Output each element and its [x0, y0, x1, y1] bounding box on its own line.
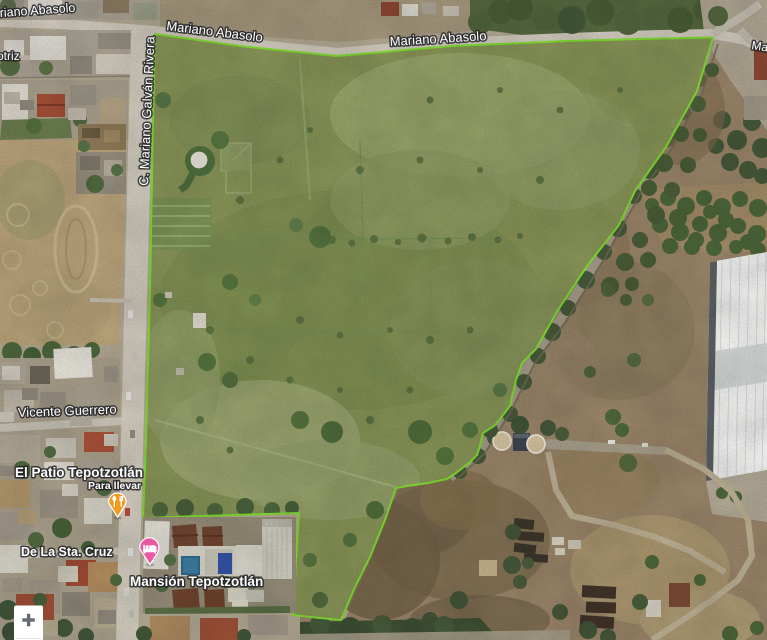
svg-text:Para llevar: Para llevar [88, 480, 141, 492]
svg-text:De La Sta. Cruz: De La Sta. Cruz [21, 545, 113, 559]
svg-text:Mansión Tepotzotlán: Mansión Tepotzotlán [130, 574, 263, 589]
svg-text:otriz: otriz [0, 49, 20, 63]
svg-text:El Patio Tepotzotlán: El Patio Tepotzotlán [15, 465, 143, 480]
